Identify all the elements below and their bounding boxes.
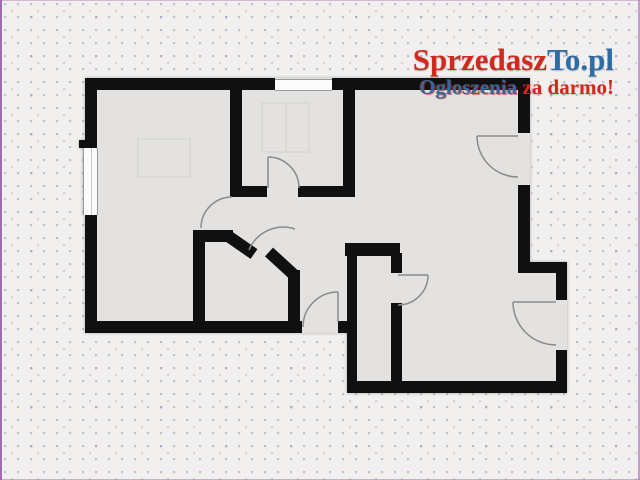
brand-name-blue: To.pl — [547, 42, 614, 77]
brand-name-red: Sprzedasz — [413, 42, 547, 77]
wall-bottom-left — [85, 321, 302, 333]
wall-bottom-right — [347, 381, 567, 393]
wall-small-room-right-lower — [391, 303, 402, 381]
wall-right-lower-above-door — [556, 273, 567, 300]
wall-bathroom-top — [193, 230, 233, 242]
wall-left-lower — [85, 215, 97, 333]
wall-top-left — [85, 78, 275, 90]
wall-room2-right — [343, 88, 355, 190]
room-main-floor — [85, 78, 530, 333]
brand-watermark: SprzedaszTo.pl Ogłoszenia za darmo! — [413, 44, 614, 98]
brand-tagline: Ogłoszenia za darmo! — [413, 77, 614, 98]
brand-tagline-rest: za darmo! — [517, 75, 614, 99]
window-pane-line — [91, 148, 92, 215]
wall-room2-bottom-left — [230, 186, 267, 197]
wall-extension-left — [347, 243, 357, 381]
wall-left-window-pillar — [79, 140, 86, 148]
brand-tagline-word-blue: Ogłoszenia — [419, 75, 517, 99]
wall-left-upper — [85, 78, 97, 148]
window-left — [83, 148, 98, 215]
wall-right-upper-below-door — [518, 185, 530, 262]
ad-image: SprzedaszTo.pl Ogłoszenia za darmo! — [0, 0, 640, 480]
wall-small-room-right-upper — [391, 253, 402, 273]
wall-bathroom-left — [193, 230, 205, 321]
edge-line-top — [0, 0, 640, 1]
brand-logo: SprzedaszTo.pl — [413, 44, 614, 75]
window-top — [275, 79, 332, 91]
edge-line-left — [0, 0, 2, 480]
wall-right-step — [518, 262, 567, 273]
wall-room2-left — [230, 88, 242, 197]
wall-bathroom-right — [288, 270, 300, 321]
